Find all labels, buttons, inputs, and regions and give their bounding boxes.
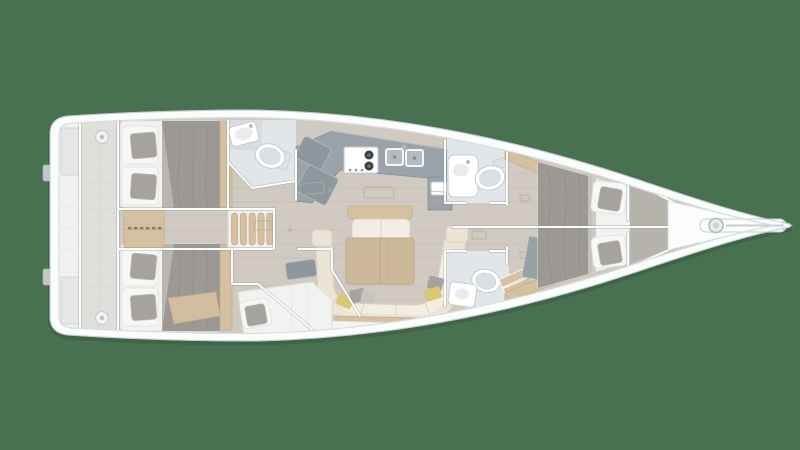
aft-cabin-port <box>118 118 232 208</box>
sink <box>447 281 477 308</box>
cockpit-overlay <box>50 117 118 335</box>
floorplan-svg <box>0 0 800 450</box>
yacht-floorplan-image <box>0 0 800 450</box>
stove <box>344 147 378 173</box>
companionway-steps <box>228 210 274 248</box>
bed-shelf <box>220 245 232 330</box>
cockpit-deck <box>50 117 118 335</box>
salon-table <box>346 238 414 284</box>
aft-cabin-starboard <box>118 244 232 334</box>
dresser <box>124 210 164 248</box>
locker-panel <box>285 259 317 280</box>
